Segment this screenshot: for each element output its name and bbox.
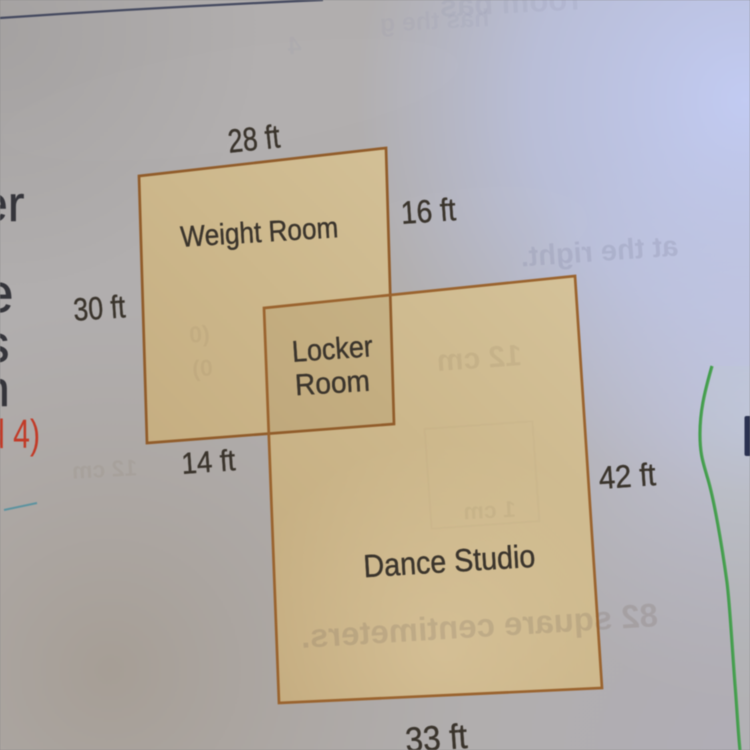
svg-text:er: er — [0, 176, 24, 232]
svg-text:33 ft: 33 ft — [404, 717, 469, 750]
svg-text:(0: (0 — [188, 320, 210, 347]
svg-text:14 ft: 14 ft — [180, 444, 237, 481]
svg-text:1 cm: 1 cm — [463, 496, 517, 525]
svg-text:0): 0) — [191, 354, 213, 381]
svg-text:d 4): d 4) — [0, 411, 40, 457]
svg-text:16 ft: 16 ft — [400, 191, 457, 231]
svg-text:42 ft: 42 ft — [598, 456, 657, 496]
svg-text:Room: Room — [294, 365, 371, 403]
svg-text:4: 4 — [287, 32, 302, 61]
svg-text:Locker: Locker — [291, 330, 374, 369]
svg-text:28 ft: 28 ft — [226, 117, 282, 159]
svg-text:12 cm: 12 cm — [71, 454, 137, 483]
svg-text:12 cm: 12 cm — [436, 339, 523, 378]
svg-text:30 ft: 30 ft — [72, 288, 126, 328]
svg-text:n: n — [0, 361, 10, 417]
svg-text:has the g: has the g — [379, 4, 490, 38]
